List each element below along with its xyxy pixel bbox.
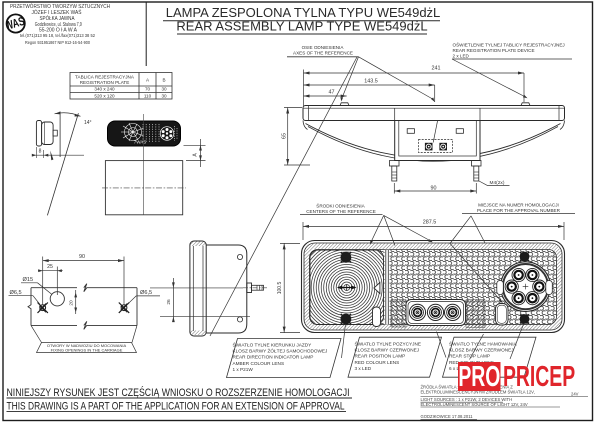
svg-text:B: B <box>162 78 165 83</box>
svg-text:tel.(071)313 95 18, tel./fax(0: tel.(071)313 95 18, tel./fax(071)313 38 … <box>20 33 95 39</box>
svg-text:AMBER COLOUR LENS: AMBER COLOUR LENS <box>233 361 285 366</box>
svg-text:241: 241 <box>432 66 441 72</box>
svg-text:OSIE ODNIESIENIA: OSIE ODNIESIENIA <box>302 45 345 50</box>
svg-text:520 x 120: 520 x 120 <box>94 93 115 98</box>
svg-text:JÓZEF I LESZEK WAŚ: JÓZEF I LESZEK WAŚ <box>32 8 82 16</box>
svg-text:AXES OF THE REFERENCE: AXES OF THE REFERENCE <box>293 51 353 56</box>
svg-text:REAR STOP LAMP: REAR STOP LAMP <box>449 354 490 359</box>
svg-text:2 x LED: 2 x LED <box>453 54 470 59</box>
svg-text:Regon 931951867 NIP 912-16-54-: Regon 931951867 NIP 912-16-54-900 <box>25 40 90 46</box>
svg-text:55-200 O ł A W A: 55-200 O ł A W A <box>39 28 78 34</box>
svg-text:143.5: 143.5 <box>364 79 378 85</box>
svg-text:287.5: 287.5 <box>423 220 437 226</box>
svg-text:REAR REGISTRATION PLATE DEVICE: REAR REGISTRATION PLATE DEVICE <box>453 48 535 53</box>
svg-text:3 x LED: 3 x LED <box>355 366 372 371</box>
svg-text:Ø15: Ø15 <box>23 277 34 283</box>
svg-text:65: 65 <box>282 133 288 139</box>
svg-text:ŚWIATŁO TYLNE KIERUNKU JAZDY: ŚWIATŁO TYLNE KIERUNKU JAZDY <box>233 341 313 348</box>
svg-text:RED COLOUR LENS: RED COLOUR LENS <box>355 360 400 365</box>
svg-text:ŚWIATŁO TYLNE HAMOWANIA: ŚWIATŁO TYLNE HAMOWANIA <box>449 340 518 347</box>
svg-text:CENTERS OF THE REFERENCE: CENTERS OF THE REFERENCE <box>306 209 376 214</box>
svg-text:M4(2x): M4(2x) <box>490 180 505 186</box>
svg-text:340 x 240: 340 x 240 <box>94 87 115 92</box>
svg-text:MIEJSCE NA NUMER HOMOLOGACJI: MIEJSCE NA NUMER HOMOLOGACJI <box>478 203 559 208</box>
svg-text:1 x P21W: 1 x P21W <box>233 367 254 372</box>
svg-text:ŚWIATŁO TYLNE POZYCYJNE: ŚWIATŁO TYLNE POZYCYJNE <box>355 340 422 347</box>
svg-text:25: 25 <box>47 264 53 270</box>
svg-text:26: 26 <box>166 299 172 305</box>
svg-text:PLACE FOR THE APPROVAL NUMBER: PLACE FOR THE APPROVAL NUMBER <box>477 208 561 213</box>
svg-text:REAR ASSEMBLY LAMP TYPE WE549d: REAR ASSEMBLY LAMP TYPE WE549dżL <box>176 19 427 34</box>
svg-text:90: 90 <box>79 254 85 260</box>
svg-text:GODZIKOWICE 17.08.2011: GODZIKOWICE 17.08.2011 <box>421 414 474 419</box>
svg-text:OŚWIETLENIE TYLNEJ TABLICY REJ: OŚWIETLENIE TYLNEJ TABLICY REJESTRACYJNE… <box>453 41 565 48</box>
svg-text:PRO: PRO <box>458 361 500 393</box>
svg-text:30: 30 <box>161 93 167 98</box>
svg-text:KLOSZ BARWY CZERWONEJ: KLOSZ BARWY CZERWONEJ <box>449 348 514 353</box>
svg-text:100.5: 100.5 <box>277 282 283 295</box>
svg-text:30: 30 <box>161 87 167 92</box>
svg-text:REAR POSITION LAMP: REAR POSITION LAMP <box>355 354 406 359</box>
svg-text:14°: 14° <box>84 120 92 126</box>
svg-text:ELECTROLUMINESCENT SOURCE OF L: ELECTROLUMINESCENT SOURCE OF LIGHT 12V, … <box>421 402 528 407</box>
svg-text:47: 47 <box>329 90 335 96</box>
svg-text:70: 70 <box>145 87 151 92</box>
svg-text:PRICEP: PRICEP <box>503 361 575 393</box>
svg-text:TABLICA REJESTRACYJNA: TABLICA REJESTRACYJNA <box>75 75 135 80</box>
svg-text:90: 90 <box>431 186 437 192</box>
svg-text:REAR DIRECTION INDICATOR LAMP: REAR DIRECTION INDICATOR LAMP <box>233 355 314 360</box>
svg-text:7WAS: 7WAS <box>134 140 147 145</box>
svg-text:PRZETWÓRSTWO TWORZYW SZTUCZNYC: PRZETWÓRSTWO TWORZYW SZTUCZNYCH <box>10 3 110 10</box>
svg-text:SPÓŁKA JAWNA: SPÓŁKA JAWNA <box>40 15 75 22</box>
svg-text:Ø6,5: Ø6,5 <box>140 290 152 296</box>
svg-text:110: 110 <box>144 93 152 98</box>
svg-text:ŚRODKI ODNIESIENIA: ŚRODKI ODNIESIENIA <box>316 202 365 209</box>
svg-text:8: 8 <box>39 148 42 154</box>
svg-text:REGISTRATION PLATE: REGISTRATION PLATE <box>80 80 130 85</box>
svg-text:Ø6,5: Ø6,5 <box>10 290 22 296</box>
svg-text:KLOSZ BARWY CZERWONEJ: KLOSZ BARWY CZERWONEJ <box>355 348 420 353</box>
svg-text:FIXING OPENINGS IN THE CARRIAG: FIXING OPENINGS IN THE CARRIAGE <box>51 348 123 353</box>
svg-text:NINIEJSZY RYSUNEK JEST CZĘŚCIĄ: NINIEJSZY RYSUNEK JEST CZĘŚCIĄ WNIOSKU O… <box>7 386 350 399</box>
svg-text:KLOSZ BARWY ŻÓŁTEJ SAMOCHODOWE: KLOSZ BARWY ŻÓŁTEJ SAMOCHODOWEJ <box>233 348 328 354</box>
svg-text:20: 20 <box>68 300 74 306</box>
svg-text:THIS DRAWING IS A PART OF THE: THIS DRAWING IS A PART OF THE APPLICATIO… <box>7 401 345 413</box>
